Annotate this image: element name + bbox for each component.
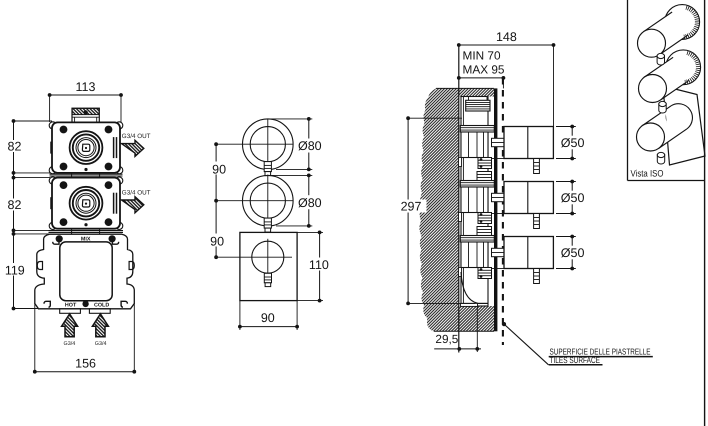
- svg-text:G3/4: G3/4: [95, 341, 107, 347]
- svg-text:82: 82: [8, 140, 22, 154]
- svg-text:113: 113: [76, 80, 96, 94]
- svg-text:Ø80: Ø80: [298, 196, 322, 210]
- svg-text:HOT: HOT: [65, 302, 77, 308]
- svg-text:119: 119: [5, 264, 25, 278]
- svg-text:29,5: 29,5: [435, 332, 458, 346]
- svg-text:Ø50: Ø50: [561, 191, 585, 205]
- svg-text:148: 148: [496, 30, 517, 44]
- svg-text:90: 90: [261, 311, 275, 325]
- svg-text:Ø80: Ø80: [298, 139, 322, 153]
- svg-text:COLD: COLD: [94, 302, 109, 308]
- svg-text:Ø50: Ø50: [561, 136, 585, 150]
- svg-text:90: 90: [212, 162, 226, 176]
- svg-text:MIX: MIX: [81, 236, 91, 242]
- svg-text:156: 156: [75, 357, 96, 371]
- svg-text:Ø50: Ø50: [561, 246, 585, 260]
- svg-text:MIN 70: MIN 70: [463, 48, 501, 62]
- svg-text:G3/4 OUT: G3/4 OUT: [122, 133, 151, 140]
- svg-text:G3/4: G3/4: [64, 341, 76, 347]
- svg-text:TILES SURFACE: TILES SURFACE: [550, 355, 601, 365]
- svg-text:82: 82: [8, 198, 22, 212]
- svg-text:297: 297: [401, 199, 422, 213]
- svg-text:MAX 95: MAX 95: [463, 62, 505, 76]
- svg-text:110: 110: [309, 258, 329, 272]
- svg-text:90: 90: [210, 234, 224, 248]
- svg-text:G3/4 OUT: G3/4 OUT: [122, 190, 151, 197]
- svg-text:Vista ISO: Vista ISO: [631, 169, 664, 179]
